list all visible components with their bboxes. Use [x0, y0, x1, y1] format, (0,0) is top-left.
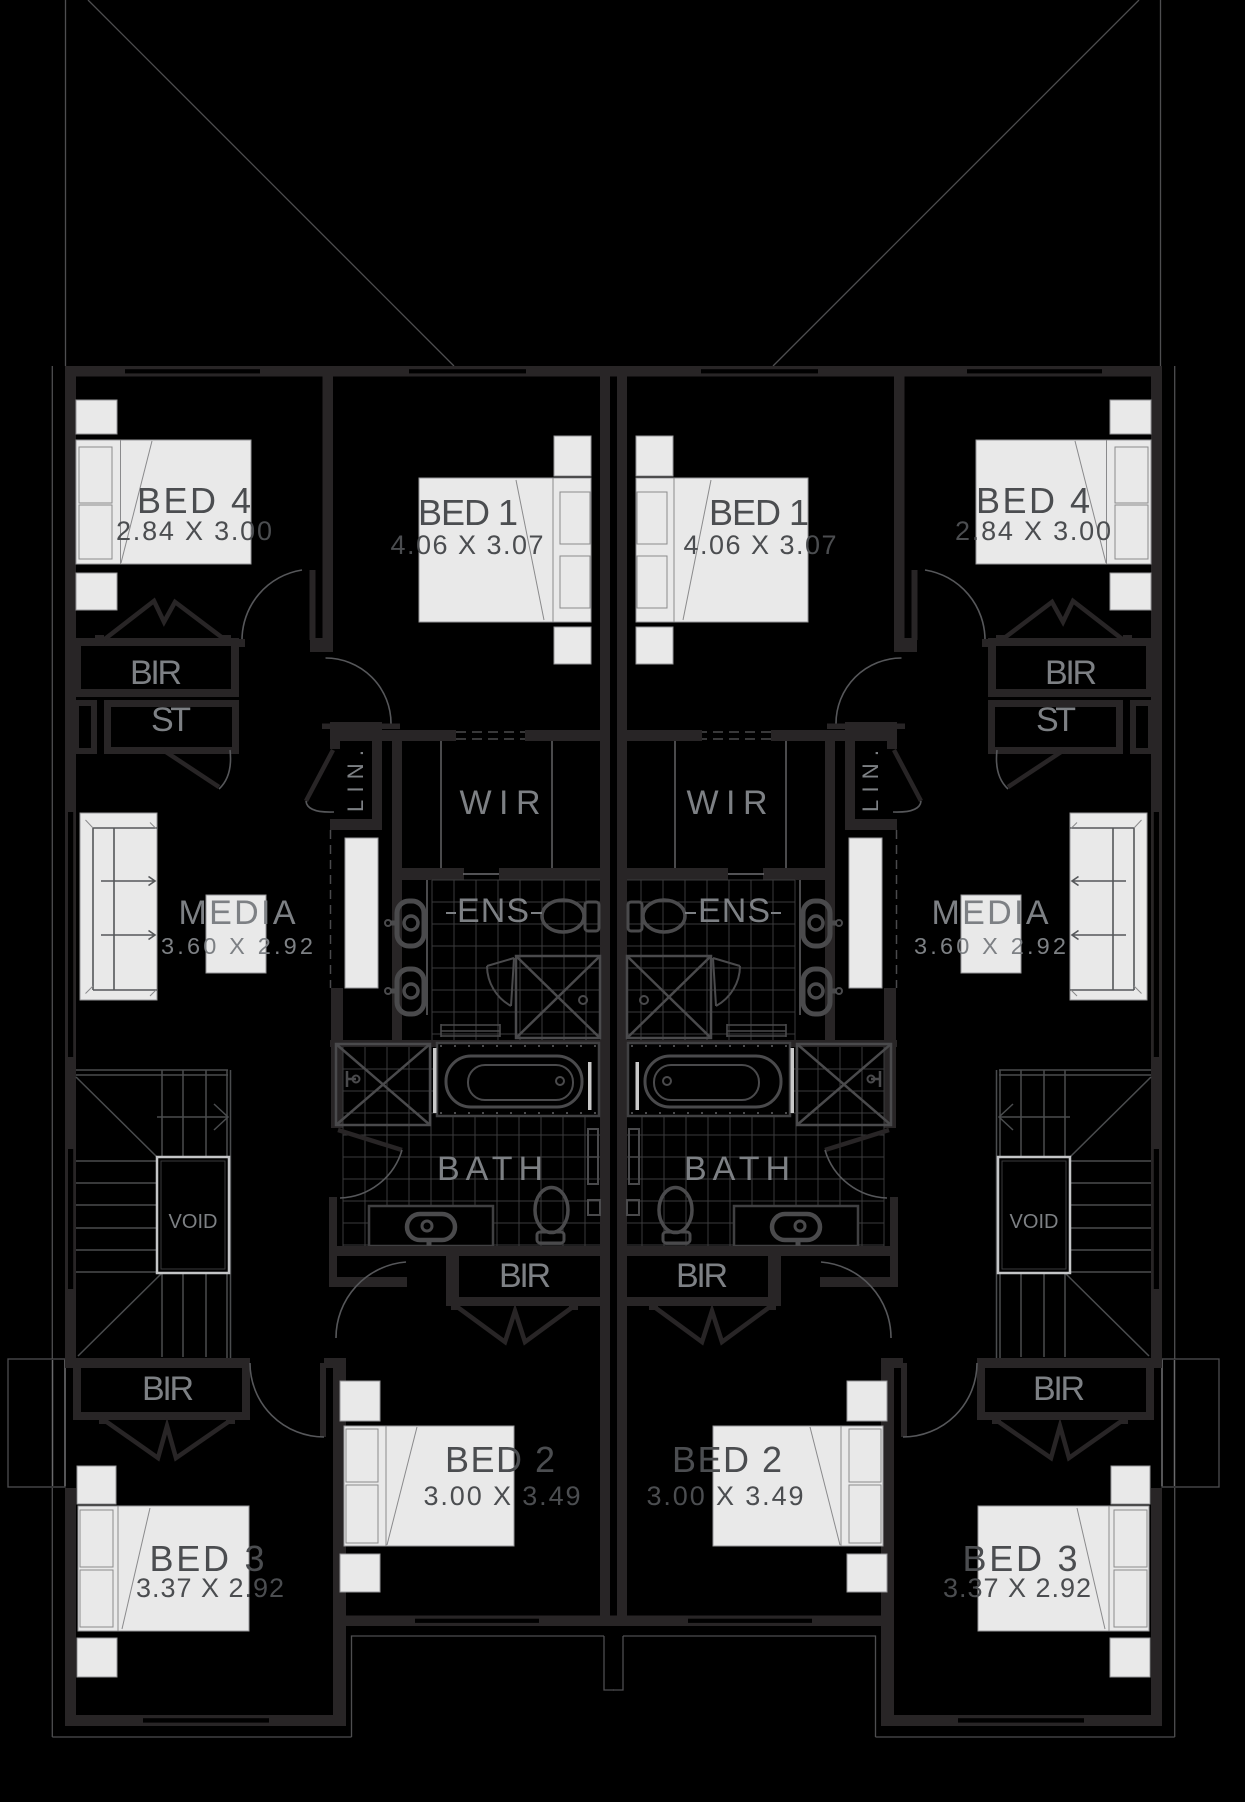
svg-text:ST: ST: [151, 701, 191, 739]
svg-text:WIR: WIR: [687, 784, 768, 822]
svg-text:VOID: VOID: [1010, 1211, 1059, 1233]
svg-text:4.06 X 3.07: 4.06 X 3.07: [391, 530, 544, 560]
svg-text:BIR: BIR: [676, 1257, 728, 1295]
svg-text:3.00 X 3.49: 3.00 X 3.49: [647, 1481, 804, 1511]
svg-text:4.06 X 3.07: 4.06 X 3.07: [684, 530, 837, 560]
svg-text:BIR: BIR: [1033, 1370, 1085, 1408]
svg-text:2.84 X 3.00: 2.84 X 3.00: [116, 516, 272, 546]
svg-text:BED 4: BED 4: [976, 480, 1090, 521]
svg-text:BIR: BIR: [130, 654, 182, 692]
svg-text:BED 1: BED 1: [709, 492, 809, 533]
svg-text:3.37 X 2.92: 3.37 X 2.92: [943, 1573, 1091, 1603]
svg-text:BED 2: BED 2: [672, 1439, 782, 1480]
svg-text:ENS: ENS: [698, 892, 770, 930]
svg-text:ST: ST: [1036, 701, 1076, 739]
svg-text:BIR: BIR: [499, 1257, 551, 1295]
svg-text:BED 4: BED 4: [137, 480, 251, 521]
svg-text:WIR: WIR: [460, 784, 541, 822]
svg-text:3.37 X 2.92: 3.37 X 2.92: [136, 1573, 284, 1603]
svg-text:BIR: BIR: [142, 1370, 194, 1408]
svg-text:VOID: VOID: [169, 1211, 218, 1233]
svg-text:3.00 X 3.49: 3.00 X 3.49: [424, 1481, 581, 1511]
svg-text:MEDIA: MEDIA: [179, 894, 296, 932]
svg-text:BED 2: BED 2: [445, 1439, 555, 1480]
svg-text:2.84 X 3.00: 2.84 X 3.00: [955, 516, 1111, 546]
svg-text:BIR: BIR: [1045, 654, 1097, 692]
svg-text:BED 1: BED 1: [418, 492, 518, 533]
svg-text:MEDIA: MEDIA: [932, 894, 1049, 932]
svg-text:ENS: ENS: [457, 892, 529, 930]
